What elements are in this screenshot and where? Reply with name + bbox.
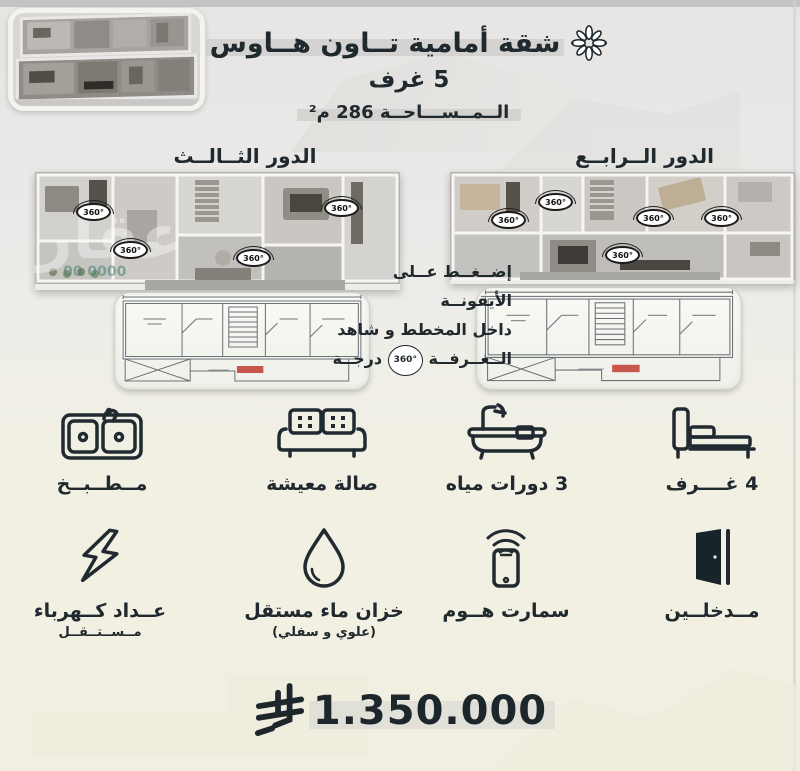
instruction-text: إضــغــط عــلى الأيقونــة داخل المخطط و … — [328, 257, 512, 376]
rooms-count-title: 5 غرف — [218, 67, 600, 93]
bed-icon — [666, 405, 758, 461]
instruction-line3-start: الــغــرفــة — [429, 349, 512, 368]
amenity-label: عــداد كــهرباء — [15, 600, 185, 622]
amenity-entrances: مــدخلــين — [627, 530, 797, 622]
instruction-line-2: داخل المخطط و شاهد — [328, 315, 512, 344]
instruction-line3-end: درجــة — [332, 349, 382, 368]
amenity-bedrooms: 4 غــــرف — [627, 403, 797, 495]
top-edge-strip — [0, 0, 800, 7]
amenity-water-tank: خزان ماء مستقل (علوي و سفلي) — [239, 530, 409, 640]
price-amount: 1.350.000 — [313, 688, 547, 734]
dollhouse-render-icon — [13, 13, 200, 106]
price-row: 1.350.000 — [0, 683, 800, 739]
header: شقة أمامية تــاون هــاوس 5 غرف الــمــسـ… — [218, 24, 600, 123]
panorama-360-badge[interactable]: 360° — [76, 203, 111, 221]
amenity-sublabel: (علوي و سفلي) — [239, 625, 409, 640]
bathtub-icon — [461, 403, 553, 461]
amenity-sublabel: مــســتــقــل — [15, 625, 185, 640]
building-3d-render-thumbnail — [8, 8, 205, 111]
amenity-label: 3 دورات مياه — [422, 473, 592, 495]
flower-ornament-icon — [570, 24, 608, 62]
panorama-360-badge[interactable]: 360° — [538, 193, 573, 211]
area-title: الــمــســـاحــة 286 م² — [309, 102, 510, 123]
amenity-living-room: صالة معيشة — [237, 403, 407, 495]
amenity-bathrooms: 3 دورات مياه — [422, 403, 592, 495]
real-estate-poster: شقة أمامية تــاون هــاوس 5 غرف الــمــسـ… — [0, 0, 800, 771]
smartphone-wifi-icon — [474, 522, 538, 588]
lightning-bolt-icon — [71, 526, 129, 588]
amenity-label: 4 غــــرف — [627, 473, 797, 495]
amenity-label: صالة معيشة — [237, 473, 407, 495]
amenity-label: خزان ماء مستقل — [239, 600, 409, 622]
instruction-line-3: الــغــرفــة 360° درجــة — [328, 344, 512, 376]
page-title: شقة أمامية تــاون هــاوس — [210, 28, 561, 59]
instruction-line-1: إضــغــط عــلى الأيقونــة — [328, 257, 512, 315]
fourth-floor-blueprint — [476, 287, 742, 390]
water-drop-icon — [297, 526, 351, 588]
amenity-kitchen: مــطــبــخ — [17, 403, 187, 495]
third-floor-label: الدور الثــالــث — [150, 144, 340, 168]
sofa-icon — [274, 405, 370, 461]
fourth-floor-label: الدور الــرابــع — [552, 144, 737, 168]
panorama-360-badge[interactable]: 360° — [704, 209, 739, 227]
amenity-label: سمارت هــوم — [421, 600, 591, 622]
open-door-icon — [684, 526, 740, 588]
panorama-360-badge[interactable]: 360° — [605, 246, 640, 264]
amenity-electric-meter: عــداد كــهرباء مــســتــقــل — [15, 530, 185, 640]
panorama-360-badge[interactable]: 360° — [324, 199, 359, 217]
blueprint-drawing — [477, 288, 741, 389]
panorama-360-badge[interactable]: 360° — [236, 249, 271, 267]
panorama-360-badge[interactable]: 360° — [491, 211, 526, 229]
amenity-smart-home: سمارت هــوم — [421, 530, 591, 622]
panorama-360-badge[interactable]: 360° — [636, 209, 671, 227]
kitchen-sink-icon — [60, 407, 144, 461]
panorama-360-inline-badge[interactable]: 360° — [388, 345, 423, 376]
amenity-label: مــطــبــخ — [17, 473, 187, 495]
saudi-riyal-icon — [253, 683, 305, 739]
amenity-label: مــدخلــين — [627, 600, 797, 622]
right-edge-line — [793, 0, 796, 771]
panorama-360-badge[interactable]: 360° — [113, 241, 148, 259]
